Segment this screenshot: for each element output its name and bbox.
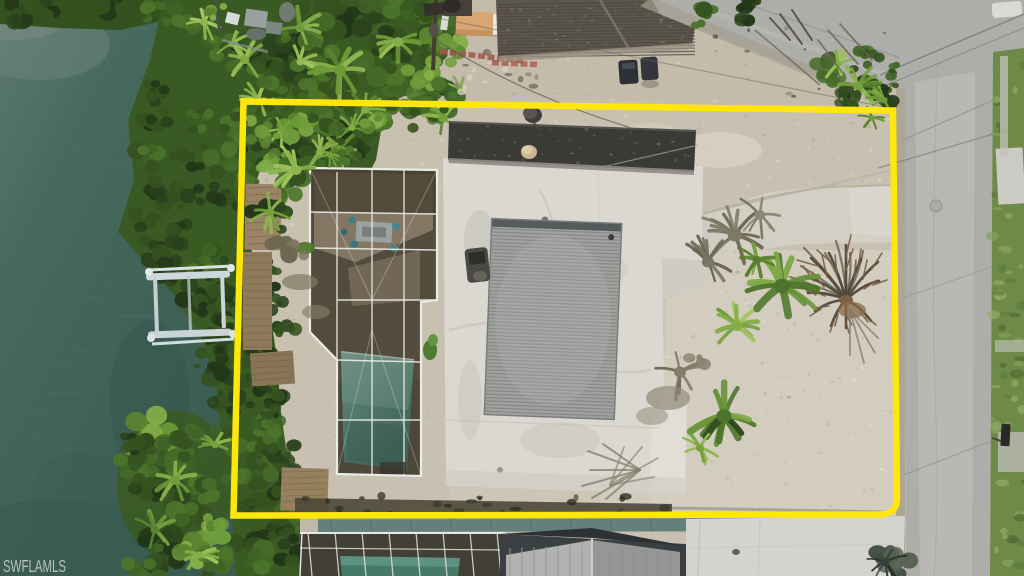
- svg-text:SWFLAMLS: SWFLAMLS: [3, 556, 66, 576]
